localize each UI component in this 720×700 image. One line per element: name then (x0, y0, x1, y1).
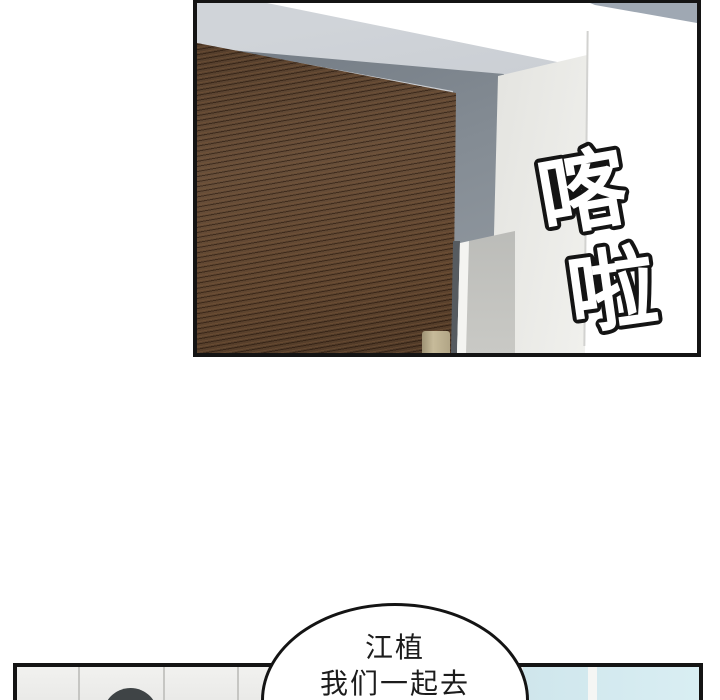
sfx-ka-text: 喀 (530, 134, 635, 251)
wall-seam (163, 667, 165, 700)
window-mullion (588, 667, 597, 700)
speech-line: 我们一起去 (264, 666, 526, 700)
door-scene-art: 喀 啦 (197, 3, 697, 353)
speech-bubble: 江植 我们一起去 (261, 603, 529, 700)
speech-bubble-text: 江植 我们一起去 (264, 630, 526, 700)
speech-line: 江植 (264, 630, 526, 666)
sound-effect-layer: 喀 啦 (197, 3, 697, 353)
comic-page: 喀 啦 江植 我们一起去 (0, 0, 720, 700)
character-head-silhouette (103, 688, 158, 700)
sfx-la-text: 啦 (561, 233, 662, 347)
panel-door-scene: 喀 啦 (193, 0, 701, 357)
window-glass (523, 667, 699, 700)
wall-seam (237, 667, 239, 700)
wall-seam (78, 667, 80, 700)
